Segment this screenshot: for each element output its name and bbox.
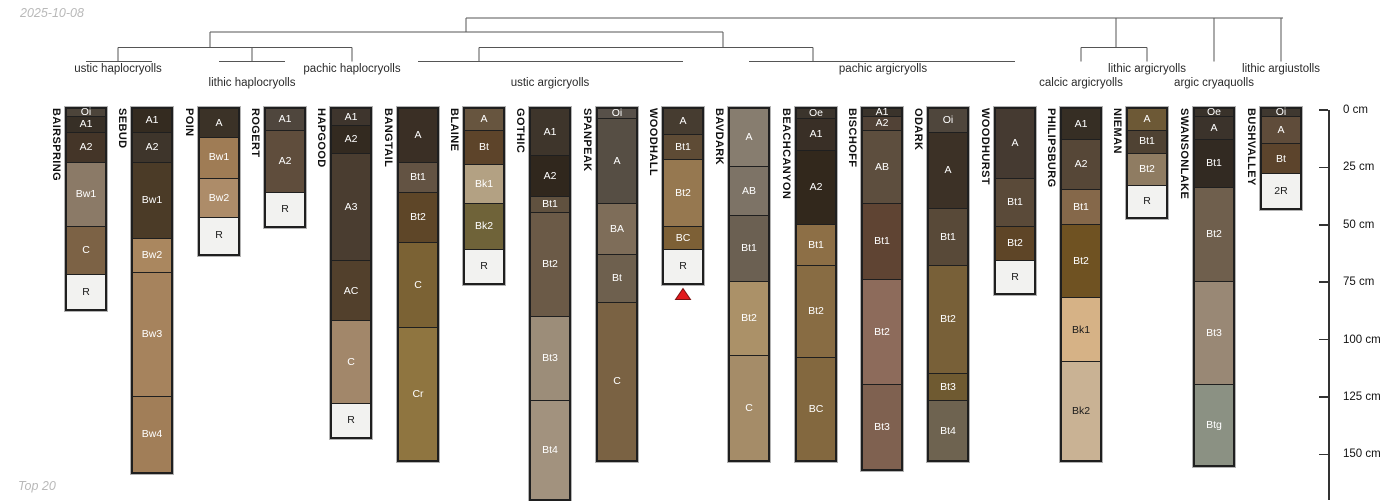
depth-axis-tick (1319, 396, 1329, 398)
soil-column-bischoff: A1A2ABBt1Bt2Bt3 (861, 107, 903, 471)
profile-name-poin: POIN (183, 108, 195, 137)
horizon-gothic-bt1: Bt1 (531, 196, 569, 212)
horizon-spanpeak-c: C (598, 302, 636, 460)
horizon-bairspring-bw1: Bw1 (67, 162, 105, 226)
horizon-philipsburg-bt1: Bt1 (1062, 189, 1100, 223)
horizon-label: Bt4 (542, 445, 558, 456)
horizon-bairspring-a1: A1 (67, 116, 105, 132)
horizon-label: Bt2 (741, 313, 757, 324)
horizon-label: Bt1 (1007, 197, 1023, 208)
soil-column-nieman: ABt1Bt2R (1126, 107, 1168, 219)
horizon-label: A2 (146, 142, 159, 153)
horizon-label: C (745, 403, 753, 414)
horizon-label: Bt (479, 142, 489, 153)
horizon-label: A (1143, 114, 1150, 125)
horizon-spanpeak-bt: Bt (598, 254, 636, 302)
horizon-sebud-bw3: Bw3 (133, 272, 171, 396)
horizon-nieman-bt1: Bt1 (1128, 130, 1166, 153)
horizon-bairspring-oi: Oi (67, 109, 105, 116)
horizon-odark-bt2: Bt2 (929, 265, 967, 373)
horizon-label: Bt2 (808, 306, 824, 317)
depth-axis-tick (1319, 109, 1329, 111)
horizon-label: A (215, 118, 222, 129)
horizon-label: BC (809, 404, 824, 415)
horizon-label: A1 (810, 129, 823, 140)
soil-column-rogert: A1A2R (264, 107, 306, 228)
horizon-label: Bt3 (542, 353, 558, 364)
horizon-spanpeak-a: A (598, 118, 636, 203)
horizon-sebud-a1: A1 (133, 109, 171, 132)
horizon-spanpeak-oi: Oi (598, 109, 636, 118)
horizon-bischoff-ab: AB (863, 130, 901, 203)
dendrogram-path (86, 18, 1283, 62)
horizon-label: A1 (1075, 119, 1088, 130)
horizon-swansonlake-a: A (1195, 116, 1233, 139)
horizon-odark-a: A (929, 132, 967, 208)
horizon-label: 2R (1274, 186, 1287, 197)
footer-note: Top 20 (18, 479, 56, 493)
horizon-label: Bt2 (675, 188, 691, 199)
horizon-blaine-a: A (465, 109, 503, 130)
horizon-label: A1 (80, 119, 93, 130)
horizon-label: Bt1 (1073, 202, 1089, 213)
soil-column-woodhurst: ABt1Bt2R (994, 107, 1036, 295)
horizon-bairspring-c: C (67, 226, 105, 274)
horizon-bavdark-bt1: Bt1 (730, 215, 768, 282)
horizon-poin-r: R (200, 217, 238, 254)
horizon-label: A2 (279, 156, 292, 167)
soil-column-gothic: A1A2Bt1Bt2Bt3Bt4 (529, 107, 571, 501)
taxon-label-argic-cryaquolls: argic cryaquolls (1174, 77, 1254, 89)
horizon-label: Bk1 (475, 179, 493, 190)
soil-column-spanpeak: OiABABtC (596, 107, 638, 462)
horizon-poin-bw2: Bw2 (200, 178, 238, 217)
profile-name-beachcanyon: BEACHCANYON (780, 108, 792, 199)
taxon-label-pachic-argicryolls: pachic argicryolls (839, 63, 927, 75)
horizon-woodhurst-a: A (996, 109, 1034, 178)
horizon-odark-bt1: Bt1 (929, 208, 967, 265)
horizon-swansonlake-bt2: Bt2 (1195, 187, 1233, 281)
soil-column-blaine: ABtBk1Bk2R (463, 107, 505, 285)
horizon-label: A1 (146, 115, 159, 126)
horizon-label: R (1011, 272, 1019, 283)
depth-axis-tick (1319, 224, 1329, 226)
horizon-philipsburg-bt2: Bt2 (1062, 224, 1100, 297)
horizon-label: Bt2 (1007, 238, 1023, 249)
horizon-label: Bt2 (940, 314, 956, 325)
horizon-bavdark-bt2: Bt2 (730, 281, 768, 354)
horizon-nieman-a: A (1128, 109, 1166, 130)
horizon-label: C (414, 280, 422, 291)
horizon-sebud-a2: A2 (133, 132, 171, 162)
horizon-label: Bt2 (1139, 164, 1155, 175)
horizon-bavdark-a: A (730, 109, 768, 166)
depth-axis-tick-label: 50 cm (1343, 218, 1374, 232)
horizon-sebud-bw2: Bw2 (133, 238, 171, 272)
horizon-bangtail-bt2: Bt2 (399, 192, 437, 242)
horizon-label: Bk2 (475, 221, 493, 232)
taxon-label-calcic-argicryolls: calcic argicryolls (1039, 77, 1123, 89)
horizon-blaine-bk1: Bk1 (465, 164, 503, 203)
horizon-bavdark-ab: AB (730, 166, 768, 214)
horizon-woodhurst-r: R (996, 260, 1034, 292)
depth-axis-tick (1319, 281, 1329, 283)
horizon-label: Bk2 (1072, 406, 1090, 417)
horizon-label: A (745, 132, 752, 143)
horizon-label: Bt4 (940, 426, 956, 437)
horizon-gothic-bt2: Bt2 (531, 212, 569, 315)
horizon-label: Bt2 (542, 259, 558, 270)
horizon-label: Bw1 (209, 152, 229, 163)
taxon-label-lithic-argiustolls: lithic argiustolls (1242, 63, 1320, 75)
horizon-poin-bw1: Bw1 (200, 137, 238, 178)
profile-name-blaine: BLAINE (448, 108, 460, 151)
horizon-bangtail-a: A (399, 109, 437, 162)
horizon-label: A1 (345, 112, 358, 123)
horizon-label: BA (610, 224, 624, 235)
horizon-nieman-bt2: Bt2 (1128, 153, 1166, 185)
horizon-bischoff-bt1: Bt1 (863, 203, 901, 279)
horizon-label: Bt1 (410, 172, 426, 183)
profile-name-odark: ODARK (912, 108, 924, 150)
horizon-woodhall-bt1: Bt1 (664, 134, 702, 159)
horizon-label: A (1210, 123, 1217, 134)
depth-axis-tick (1319, 167, 1329, 169)
soil-column-bairspring: OiA1A2Bw1CR (65, 107, 107, 311)
horizon-label: A1 (544, 127, 557, 138)
horizon-label: A2 (345, 134, 358, 145)
horizon-label: Bt3 (940, 382, 956, 393)
soil-column-bavdark: AABBt1Bt2C (728, 107, 770, 462)
horizon-label: Bt1 (542, 199, 558, 210)
horizon-bushvalley-bt: Bt (1262, 143, 1300, 173)
profile-name-woodhall: WOODHALL (647, 108, 659, 176)
horizon-bavdark-c: C (730, 355, 768, 461)
depth-axis-tick (1319, 339, 1329, 341)
taxon-label-ustic-argicryolls: ustic argicryolls (511, 77, 590, 89)
horizon-label: A (1011, 138, 1018, 149)
profile-name-swansonlake: SWANSONLAKE (1178, 108, 1190, 199)
horizon-label: A (944, 165, 951, 176)
horizon-rogert-a1: A1 (266, 109, 304, 130)
horizon-label: Bk1 (1072, 325, 1090, 336)
horizon-bushvalley-2r: 2R (1262, 173, 1300, 207)
horizon-label: R (82, 287, 90, 298)
horizon-bangtail-cr: Cr (399, 327, 437, 460)
horizon-label: Bw1 (76, 189, 96, 200)
horizon-label: R (480, 261, 488, 272)
profile-name-nieman: NIEMAN (1111, 108, 1123, 154)
horizon-hapgood-r: R (332, 403, 370, 437)
depth-axis-tick-label: 0 cm (1343, 103, 1368, 117)
horizon-label: Bw2 (142, 250, 162, 261)
horizon-bischoff-a2: A2 (863, 116, 901, 130)
highlight-marker-triangle (674, 287, 692, 301)
horizon-label: A2 (876, 118, 889, 129)
horizon-blaine-bk2: Bk2 (465, 203, 503, 249)
horizon-sebud-bw1: Bw1 (133, 162, 171, 238)
profile-name-woodhurst: WOODHURST (979, 108, 991, 185)
horizon-woodhall-bc: BC (664, 226, 702, 249)
horizon-sebud-bw4: Bw4 (133, 396, 171, 472)
horizon-label: Bt1 (808, 240, 824, 251)
horizon-beachcanyon-bc: BC (797, 357, 835, 460)
horizon-blaine-r: R (465, 249, 503, 283)
horizon-label: Cr (412, 389, 423, 400)
horizon-label: Oi (943, 115, 954, 126)
horizon-bischoff-bt3: Bt3 (863, 384, 901, 469)
horizon-label: C (82, 245, 90, 256)
profile-name-bushvalley: BUSHVALLEY (1245, 108, 1257, 186)
soil-column-bushvalley: OiABt2R (1260, 107, 1302, 210)
profile-name-bangtail: BANGTAIL (382, 108, 394, 167)
horizon-bischoff-a1: A1 (863, 109, 901, 116)
horizon-hapgood-a2: A2 (332, 125, 370, 153)
horizon-hapgood-c: C (332, 320, 370, 403)
horizon-label: Bw1 (142, 195, 162, 206)
horizon-bischoff-bt2: Bt2 (863, 279, 901, 385)
horizon-label: Bt (612, 273, 622, 284)
profile-name-gothic: GOTHIC (514, 108, 526, 153)
taxon-label-lithic-argicryolls: lithic argicryolls (1108, 63, 1186, 75)
horizon-label: R (281, 204, 289, 215)
depth-axis-tick (1319, 454, 1329, 456)
horizon-swansonlake-btg: Btg (1195, 384, 1233, 464)
horizon-swansonlake-bt3: Bt3 (1195, 281, 1233, 384)
horizon-label: Bt3 (1206, 328, 1222, 339)
horizon-rogert-r: R (266, 192, 304, 226)
horizon-woodhall-r: R (664, 249, 702, 283)
horizon-beachcanyon-a2: A2 (797, 150, 835, 223)
horizon-bairspring-a2: A2 (67, 132, 105, 162)
horizon-rogert-a2: A2 (266, 130, 304, 192)
horizon-odark-bt3: Bt3 (929, 373, 967, 401)
horizon-label: Bt3 (874, 422, 890, 433)
soil-column-poin: ABw1Bw2R (198, 107, 240, 256)
soil-column-philipsburg: A1A2Bt1Bt2Bk1Bk2 (1060, 107, 1102, 462)
depth-axis-tick-label: 125 cm (1343, 390, 1381, 404)
horizon-woodhurst-bt2: Bt2 (996, 226, 1034, 260)
horizon-label: Bt1 (874, 236, 890, 247)
horizon-label: Bw4 (142, 429, 162, 440)
horizon-gothic-a2: A2 (531, 155, 569, 196)
profile-name-bischoff: BISCHOFF (846, 108, 858, 167)
horizon-gothic-bt4: Bt4 (531, 400, 569, 499)
horizon-nieman-r: R (1128, 185, 1166, 217)
horizon-label: A (1277, 125, 1284, 136)
horizon-label: R (1143, 196, 1151, 207)
horizon-label: A (613, 156, 620, 167)
horizon-label: Bt2 (1073, 256, 1089, 267)
horizon-label: Btg (1206, 420, 1222, 431)
profile-name-hapgood: HAPGOOD (315, 108, 327, 168)
horizon-bushvalley-a: A (1262, 116, 1300, 144)
horizon-label: Bt2 (874, 327, 890, 338)
soil-profile-chart: 2025-10-08 ustic haplocryollslithic hapl… (0, 0, 1400, 500)
horizon-woodhall-a: A (664, 109, 702, 134)
horizon-label: Bt1 (675, 142, 691, 153)
taxon-label-pachic-haplocryolls: pachic haplocryolls (303, 63, 400, 75)
horizon-label: A (414, 130, 421, 141)
horizon-bushvalley-oi: Oi (1262, 109, 1300, 116)
profile-name-philipsburg: PHILIPSBURG (1045, 108, 1057, 188)
horizon-beachcanyon-oe: Oe (797, 109, 835, 118)
depth-axis-tick-label: 25 cm (1343, 160, 1374, 174)
horizon-swansonlake-bt1: Bt1 (1195, 139, 1233, 187)
profile-name-spanpeak: SPANPEAK (581, 108, 593, 172)
horizon-label: A2 (1075, 159, 1088, 170)
profile-name-sebud: SEBUD (116, 108, 128, 149)
horizon-label: R (679, 261, 687, 272)
horizon-label: BC (676, 233, 691, 244)
horizon-label: A2 (544, 171, 557, 182)
horizon-label: Bt1 (1206, 158, 1222, 169)
horizon-philipsburg-a2: A2 (1062, 139, 1100, 189)
horizon-hapgood-a1: A1 (332, 109, 370, 125)
horizon-gothic-bt3: Bt3 (531, 316, 569, 401)
horizon-label: A2 (80, 142, 93, 153)
horizon-gothic-a1: A1 (531, 109, 569, 155)
horizon-odark-oi: Oi (929, 109, 967, 132)
horizon-label: Bt1 (940, 232, 956, 243)
horizon-label: R (215, 230, 223, 241)
horizon-poin-a: A (200, 109, 238, 137)
profile-name-bavdark: BAVDARK (713, 108, 725, 165)
horizon-bangtail-bt1: Bt1 (399, 162, 437, 192)
depth-axis-tick-label: 100 cm (1343, 333, 1381, 347)
horizon-hapgood-a3: A3 (332, 153, 370, 261)
profile-name-rogert: ROGERT (249, 108, 261, 157)
horizon-hapgood-ac: AC (332, 260, 370, 320)
horizon-woodhall-bt2: Bt2 (664, 159, 702, 226)
horizon-beachcanyon-bt2: Bt2 (797, 265, 835, 357)
horizon-label: AB (742, 186, 756, 197)
soil-column-beachcanyon: OeA1A2Bt1Bt2BC (795, 107, 837, 462)
horizon-label: Bw3 (142, 329, 162, 340)
horizon-spanpeak-ba: BA (598, 203, 636, 253)
horizon-label: A1 (279, 114, 292, 125)
depth-axis-tick-label: 75 cm (1343, 275, 1374, 289)
horizon-blaine-bt: Bt (465, 130, 503, 164)
horizon-label: Bt1 (741, 243, 757, 254)
horizon-odark-bt4: Bt4 (929, 400, 967, 460)
horizon-philipsburg-a1: A1 (1062, 109, 1100, 139)
horizon-label: A3 (345, 202, 358, 213)
horizon-beachcanyon-a1: A1 (797, 118, 835, 150)
horizon-label: Bt2 (1206, 229, 1222, 240)
soil-column-hapgood: A1A2A3ACCR (330, 107, 372, 439)
horizon-bairspring-r: R (67, 274, 105, 308)
horizon-label: A (679, 116, 686, 127)
horizon-label: Bt2 (410, 212, 426, 223)
depth-axis-line (1328, 110, 1330, 500)
horizon-bangtail-c: C (399, 242, 437, 327)
horizon-label: Bw2 (209, 193, 229, 204)
soil-column-swansonlake: OeABt1Bt2Bt3Btg (1193, 107, 1235, 467)
horizon-philipsburg-bk2: Bk2 (1062, 361, 1100, 460)
horizon-label: C (347, 357, 355, 368)
horizon-label: AC (344, 286, 359, 297)
horizon-label: AB (875, 162, 889, 173)
taxon-label-lithic-haplocryolls: lithic haplocryolls (209, 77, 296, 89)
horizon-label: A2 (810, 182, 823, 193)
soil-column-sebud: A1A2Bw1Bw2Bw3Bw4 (131, 107, 173, 474)
horizon-label: Bt1 (1139, 136, 1155, 147)
soil-column-woodhall: ABt1Bt2BCR (662, 107, 704, 285)
depth-axis-tick-label: 150 cm (1343, 447, 1381, 461)
profile-name-bairspring: BAIRSPRING (50, 108, 62, 181)
horizon-label: Bt (1276, 154, 1286, 165)
horizon-woodhurst-bt1: Bt1 (996, 178, 1034, 226)
soil-column-odark: OiABt1Bt2Bt3Bt4 (927, 107, 969, 462)
horizon-label: R (347, 415, 355, 426)
horizon-label: A (480, 114, 487, 125)
soil-column-bangtail: ABt1Bt2CCr (397, 107, 439, 462)
horizon-philipsburg-bk1: Bk1 (1062, 297, 1100, 361)
taxon-label-ustic-haplocryolls: ustic haplocryolls (74, 63, 162, 75)
horizon-label: C (613, 376, 621, 387)
horizon-beachcanyon-bt1: Bt1 (797, 224, 835, 265)
horizon-swansonlake-oe: Oe (1195, 109, 1233, 116)
